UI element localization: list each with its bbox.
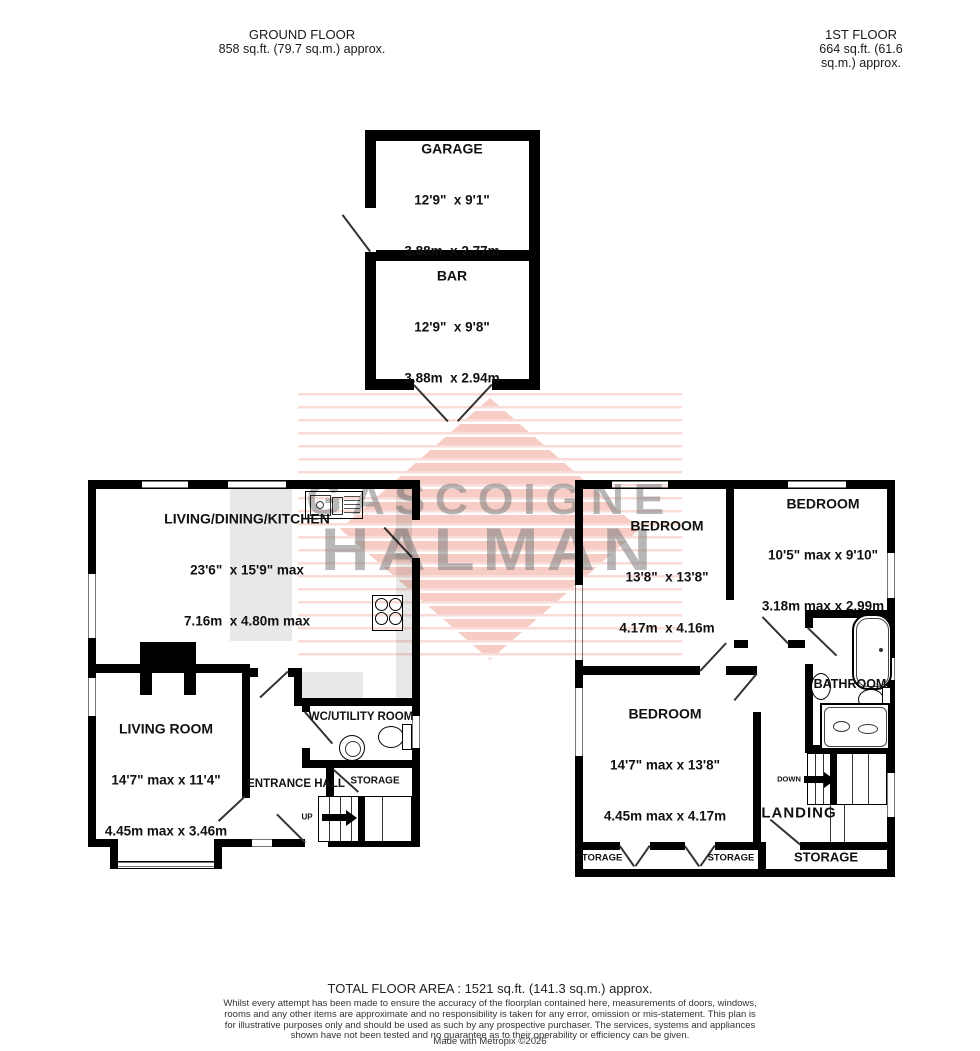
- stairs-up-label: UP: [301, 813, 312, 822]
- hob-burner-icon: [389, 612, 402, 625]
- room-label-entrance-hall: ENTRANCE HALL: [247, 778, 345, 790]
- ground-floor-title: GROUND FLOOR: [219, 27, 386, 42]
- sink-basin-icon: [345, 741, 361, 757]
- stair-divider: [358, 796, 365, 842]
- window: [887, 553, 895, 598]
- wall: [726, 480, 734, 600]
- wall: [753, 712, 761, 842]
- door-opening: [412, 520, 420, 558]
- down-arrow-icon: [804, 776, 824, 783]
- wall: [805, 664, 813, 753]
- window: [575, 585, 583, 660]
- window: [887, 773, 895, 817]
- room-label-storage-3: STORAGE: [794, 850, 858, 865]
- room-label-landing: LANDING: [761, 805, 836, 822]
- toilet-icon: [378, 726, 404, 748]
- total-floor-area: TOTAL FLOOR AREA : 1521 sq.ft. (141.3 sq…: [328, 981, 653, 996]
- sink-drainer-icon: [344, 496, 360, 514]
- room-label-living-room: LIVING ROOM 14'7" max x 11'4" 4.45m max …: [105, 686, 227, 875]
- stair-banister: [844, 805, 845, 843]
- wall: [734, 640, 748, 648]
- wall: [250, 668, 258, 677]
- landing-storage-door-leaf: [770, 819, 801, 845]
- first-floor-header: 1ST FLOOR 664 sq.ft. (61.6 sq.m.) approx…: [802, 27, 921, 70]
- room-label-bedroom2: BEDROOM 10'5" max x 9'10" 3.18m max x 2.…: [762, 461, 884, 650]
- wall: [294, 668, 302, 706]
- room-label-bar: BAR 12'9" x 9'8" 3.88m x 2.94m: [404, 233, 499, 422]
- wall: [758, 842, 766, 877]
- room-label-bedroom3: BEDROOM 14'7" max x 13'8" 4.45m max x 4.…: [604, 671, 726, 860]
- floorplan-canvas: GROUND FLOOR 858 sq.ft. (79.7 sq.m.) app…: [0, 0, 980, 1051]
- stair-tread: [852, 754, 853, 804]
- watermark-text-halman: HALMAN: [321, 515, 659, 584]
- window: [88, 574, 96, 638]
- up-arrow-icon: [346, 810, 357, 826]
- room-label-bedroom1: BEDROOM 13'8" x 13'8" 4.17m x 4.16m: [619, 483, 714, 672]
- hall-door-leaf: [260, 671, 289, 698]
- ground-floor-area: 858 sq.ft. (79.7 sq.m.) approx.: [219, 42, 386, 56]
- wall: [575, 480, 583, 877]
- up-arrow-icon: [322, 814, 346, 821]
- wall: [412, 768, 420, 847]
- room-label-storage-gf: STORAGE: [350, 776, 399, 787]
- credit-text: Made with Metropix ©2026: [433, 1036, 546, 1047]
- wall: [726, 666, 757, 675]
- stair-tread: [382, 797, 383, 841]
- floor-shading: [295, 672, 363, 698]
- room-label-bathroom: BATHROOM: [814, 677, 887, 691]
- window: [575, 688, 583, 756]
- toilet-cistern-icon: [402, 724, 412, 750]
- hob-burner-icon: [389, 598, 402, 611]
- wall: [529, 130, 540, 390]
- sink-tap-icon: [332, 497, 343, 515]
- first-floor-title: 1ST FLOOR: [802, 27, 921, 42]
- wall: [365, 130, 376, 390]
- first-floor-area: 664 sq.ft. (61.6 sq.m.) approx.: [802, 42, 921, 70]
- bedroom-door-leaf: [734, 673, 758, 701]
- shower-handle-icon: [858, 724, 878, 734]
- hob-burner-icon: [375, 612, 388, 625]
- stair-tread: [868, 754, 869, 804]
- wall: [412, 480, 420, 706]
- shower-control-icon: [833, 721, 850, 732]
- room-label-ldk: LIVING/DINING/KITCHEN 23'6" x 15'9" max …: [164, 476, 330, 665]
- wall: [272, 839, 305, 847]
- room-label-wc-utility: WC/UTILITY ROOM: [309, 711, 414, 723]
- window: [252, 839, 272, 847]
- ground-floor-header: GROUND FLOOR 858 sq.ft. (79.7 sq.m.) app…: [219, 27, 386, 56]
- stairs-down-label: DOWN: [777, 775, 801, 784]
- down-arrow-icon: [824, 772, 835, 788]
- wall: [302, 698, 420, 706]
- wall: [302, 760, 420, 768]
- window: [88, 678, 96, 716]
- wall: [575, 869, 895, 877]
- hob-burner-icon: [375, 598, 388, 611]
